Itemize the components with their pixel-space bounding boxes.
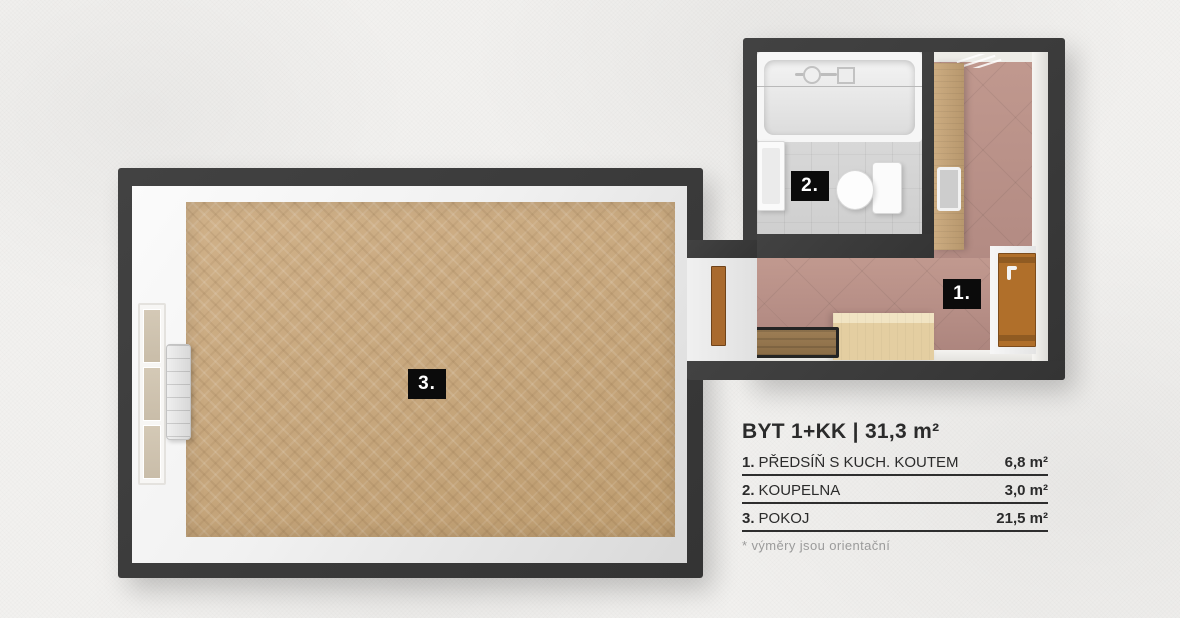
mirror — [937, 167, 961, 211]
legend-room-name: 2.KOUPELNA — [742, 482, 840, 499]
legend-row-mainroom: 3.POKOJ 21,5 m² — [742, 508, 1048, 532]
legend-row-hallway: 1.PŘEDSÍŇ S KUCH. KOUTEM 6,8 m² — [742, 452, 1048, 476]
interior-door — [711, 266, 726, 346]
hallway-bottom-wall — [687, 361, 1065, 380]
kitchen-counter — [833, 313, 934, 360]
legend-room-area: 21,5 m² — [996, 510, 1048, 527]
legend: BYT 1+KK | 31,3 m² 1.PŘEDSÍŇ S KUCH. KOU… — [742, 420, 1048, 553]
legend-row-bathroom: 2.KOUPELNA 3,0 m² — [742, 480, 1048, 504]
bathroom-south-wall — [757, 234, 934, 258]
door-handle-icon — [1007, 266, 1011, 280]
room-label-mainroom: 3. — [408, 369, 446, 399]
kitchen-bench — [750, 327, 839, 358]
sink-basin — [762, 148, 780, 204]
window-pane — [143, 367, 161, 421]
toilet-cistern — [872, 162, 902, 214]
passage-top-wall — [687, 240, 757, 258]
toilet-bowl — [836, 170, 874, 210]
window — [138, 303, 166, 485]
door-rail — [999, 335, 1035, 341]
legend-room-area: 3,0 m² — [1005, 482, 1048, 499]
sink — [757, 141, 785, 211]
mixer-valve — [837, 67, 855, 84]
window-pane — [143, 425, 161, 479]
faucet-icon — [795, 66, 855, 84]
legend-room-name: 3.POKOJ — [742, 510, 809, 527]
window-pane — [143, 309, 161, 363]
shower-head — [803, 66, 821, 84]
room-label-hallway: 1. — [943, 279, 981, 309]
bathroom-hall-partition-wall — [922, 52, 934, 234]
floorplan-canvas: 1. 2. 3. BYT 1+KK | 31,3 m² 1.PŘEDSÍŇ S … — [0, 0, 1180, 618]
legend-note: * výměry jsou orientační — [742, 538, 1048, 553]
door-rail — [999, 257, 1035, 263]
legend-title: BYT 1+KK | 31,3 m² — [742, 420, 1048, 444]
wardrobe — [934, 63, 964, 250]
bathtub — [757, 52, 922, 142]
radiator — [166, 344, 191, 440]
entrance-door — [998, 253, 1036, 347]
room-label-bathroom: 2. — [791, 171, 829, 201]
legend-room-name: 1.PŘEDSÍŇ S KUCH. KOUTEM — [742, 454, 959, 471]
bathtub-rim-line — [757, 86, 922, 87]
legend-room-area: 6,8 m² — [1005, 454, 1048, 471]
